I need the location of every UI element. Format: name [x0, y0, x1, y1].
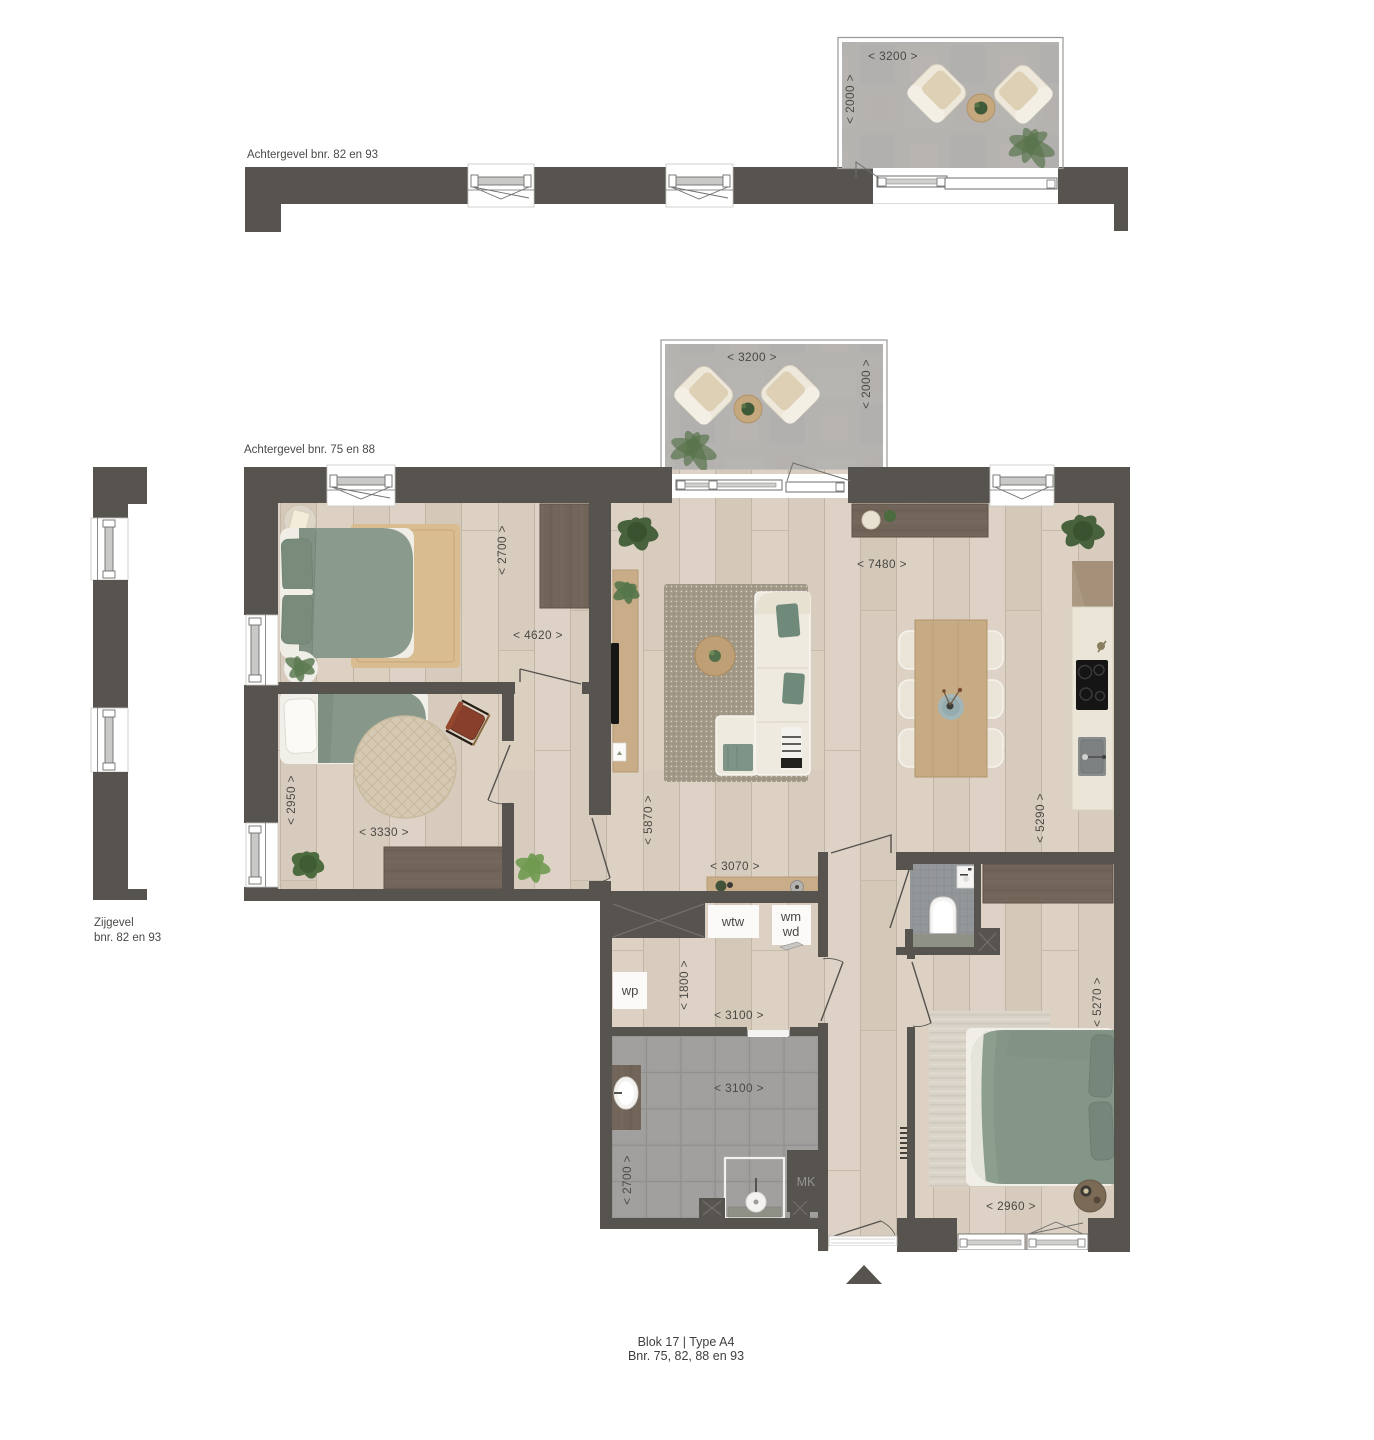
svg-text:< 2700 >: < 2700 >	[495, 525, 509, 575]
svg-text:< 7480 >: < 7480 >	[857, 557, 907, 571]
svg-text:Achtergevel bnr. 75 en 88: Achtergevel bnr. 75 en 88	[244, 444, 375, 456]
svg-text:< 3200 >: < 3200 >	[727, 350, 777, 364]
svg-text:< 2000 >: < 2000 >	[843, 74, 857, 124]
svg-text:wtw: wtw	[721, 914, 745, 929]
svg-text:< 5870 >: < 5870 >	[641, 795, 655, 845]
svg-text:Blok 17 | Type A4: Blok 17 | Type A4	[638, 1335, 735, 1349]
svg-text:< 5270 >: < 5270 >	[1090, 977, 1104, 1027]
svg-text:Bnr. 75, 82, 88 en 93: Bnr. 75, 82, 88 en 93	[628, 1349, 744, 1363]
svg-text:< 2960 >: < 2960 >	[986, 1199, 1036, 1213]
svg-text:Achtergevel bnr. 82 en 93: Achtergevel bnr. 82 en 93	[247, 149, 378, 161]
svg-text:< 2700 >: < 2700 >	[620, 1155, 634, 1205]
svg-text:wd: wd	[782, 924, 800, 939]
svg-text:< 3200 >: < 3200 >	[868, 49, 918, 63]
svg-text:< 4620 >: < 4620 >	[513, 628, 563, 642]
svg-text:bnr. 82 en 93: bnr. 82 en 93	[94, 932, 161, 944]
svg-text:MK: MK	[797, 1175, 816, 1189]
svg-text:< 3100 >: < 3100 >	[714, 1081, 764, 1095]
svg-text:< 3070 >: < 3070 >	[710, 859, 760, 873]
svg-text:Zijgevel: Zijgevel	[94, 917, 134, 929]
svg-text:< 5290 >: < 5290 >	[1033, 793, 1047, 843]
svg-text:< 1800 >: < 1800 >	[677, 960, 691, 1010]
svg-text:< 2000 >: < 2000 >	[859, 359, 873, 409]
svg-text:< 3100 >: < 3100 >	[714, 1008, 764, 1022]
svg-text:< 3330 >: < 3330 >	[359, 825, 409, 839]
svg-text:wm: wm	[780, 909, 801, 924]
svg-text:< 2950 >: < 2950 >	[284, 775, 298, 825]
svg-text:wp: wp	[621, 983, 639, 998]
